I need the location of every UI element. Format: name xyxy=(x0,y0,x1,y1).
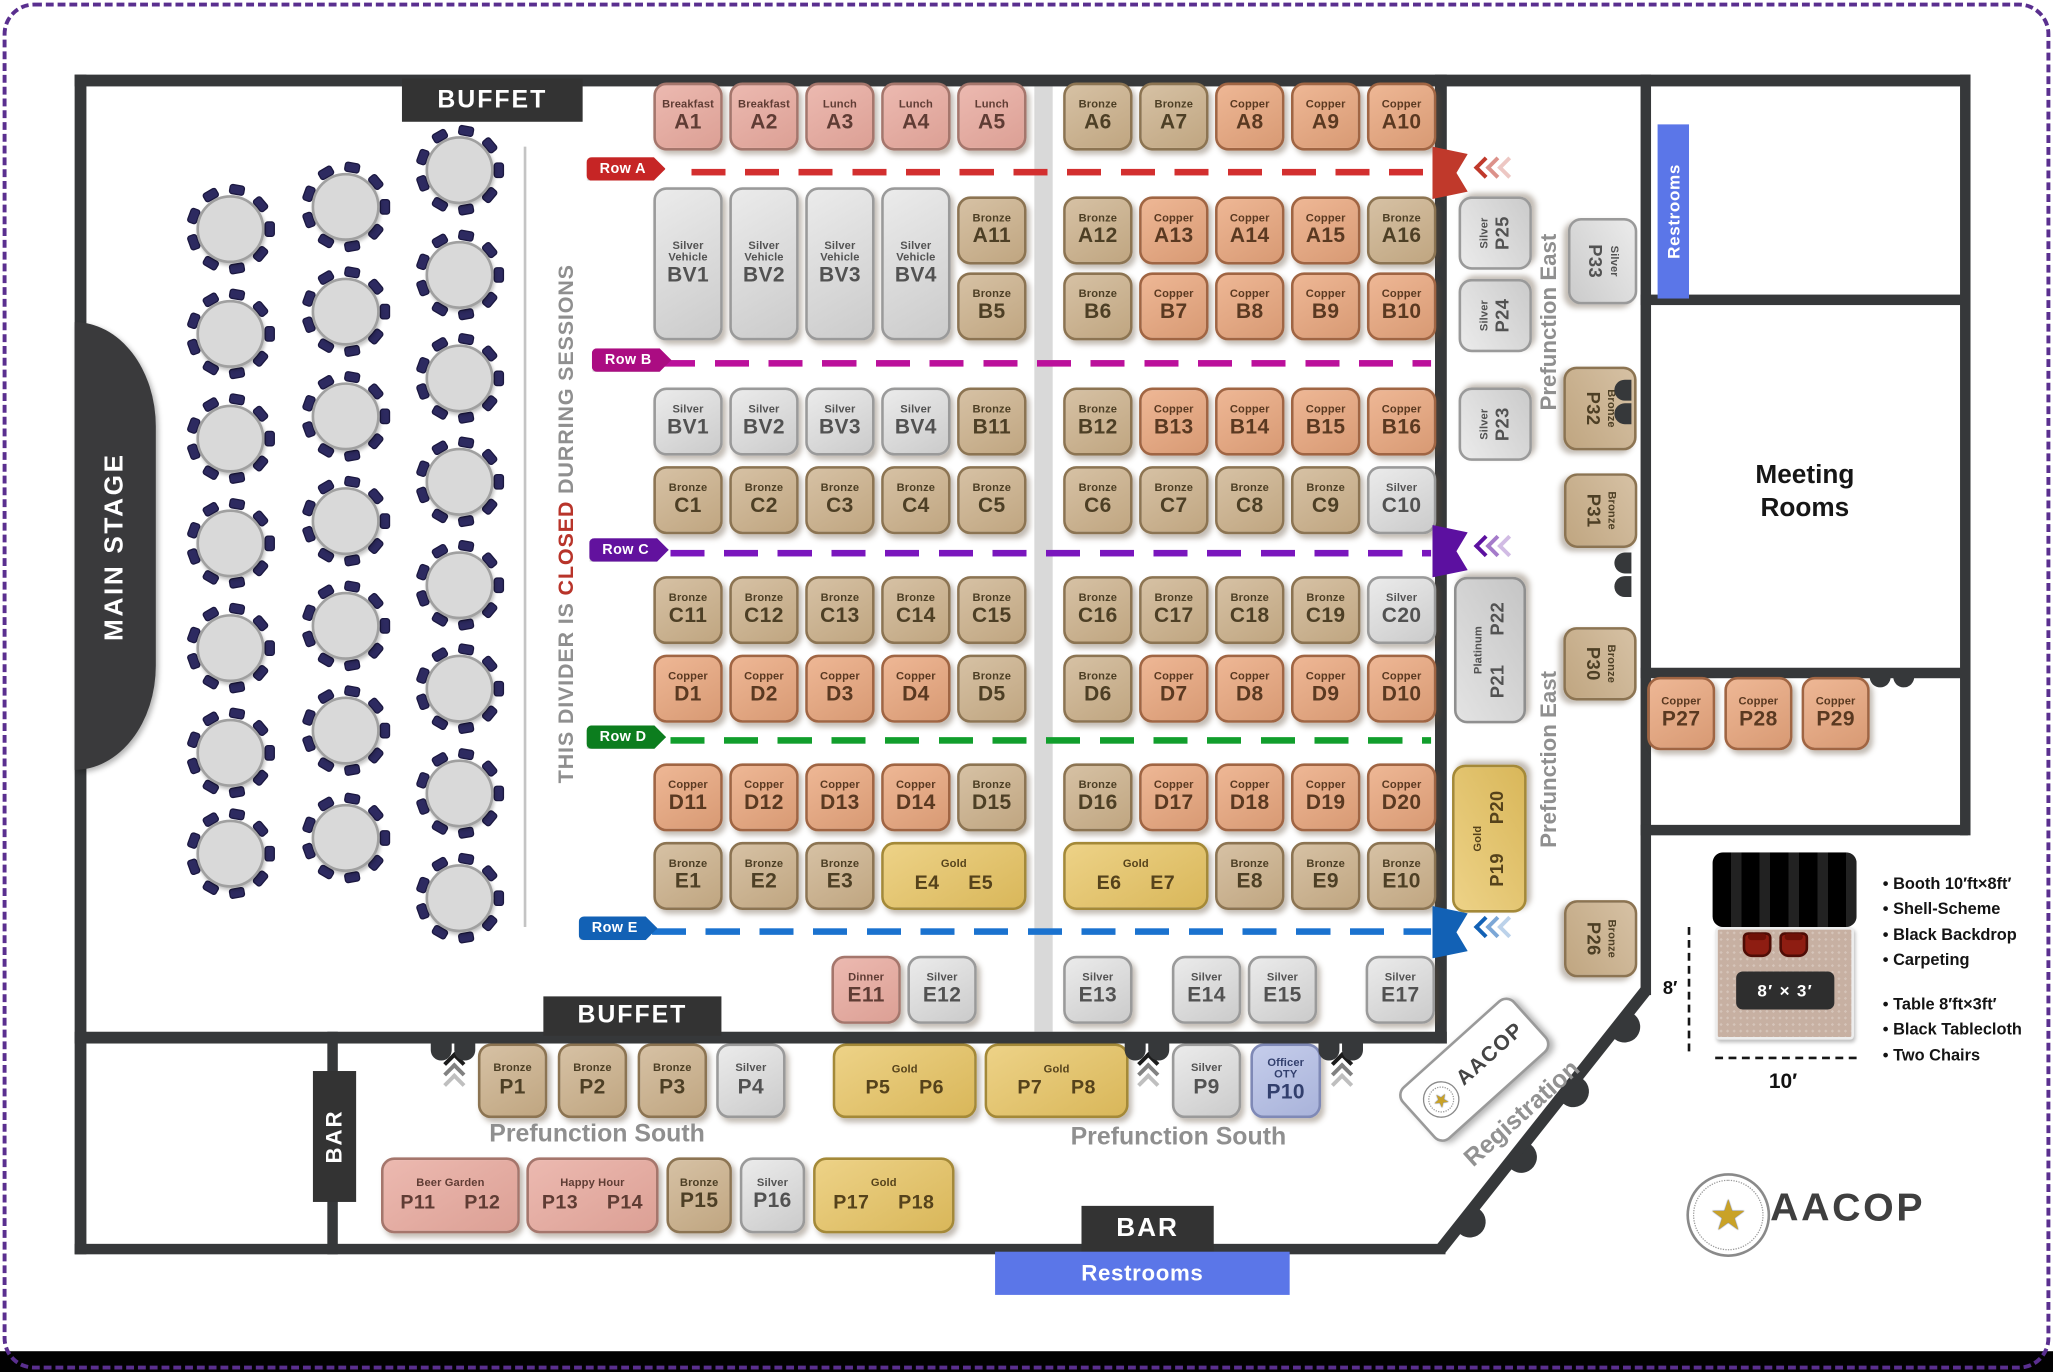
booth-tier: Breakfast xyxy=(662,98,714,110)
chair-icon xyxy=(264,326,274,342)
booth-tier: Copper xyxy=(1306,670,1346,682)
booth-D6[interactable]: BronzeD6 xyxy=(1063,655,1132,723)
booth-id: P4 xyxy=(738,1076,764,1100)
door-swing-icon xyxy=(1614,1014,1647,1049)
booth-spec-list: Booth 10′ft×8ft′Shell-SchemeBlack Backdr… xyxy=(1883,872,2017,973)
booth-D4[interactable]: CopperD4 xyxy=(881,655,950,723)
table-spec-list: Table 8′ft×3ft′Black TableclothTwo Chair… xyxy=(1883,992,2022,1068)
door-swing-icon xyxy=(1870,670,1915,688)
booth-A1[interactable]: BreakfastA1 xyxy=(653,82,722,150)
booth-tier: Silver xyxy=(1478,409,1490,440)
booth-C18[interactable]: BronzeC18 xyxy=(1215,576,1284,644)
booth-id: E4E5 xyxy=(915,872,993,894)
booth-A2[interactable]: BreakfastA2 xyxy=(729,82,798,150)
booth-tier: Copper xyxy=(1382,288,1422,300)
table-top xyxy=(426,241,494,309)
booth-C9[interactable]: BronzeC9 xyxy=(1291,466,1360,534)
booth-id: D16 xyxy=(1078,792,1118,816)
round-table xyxy=(181,389,281,489)
booth-id: D13 xyxy=(820,792,860,816)
booth-D2[interactable]: CopperD2 xyxy=(729,655,798,723)
booth-tier: Bronze xyxy=(1230,592,1269,604)
booth-D5[interactable]: BronzeD5 xyxy=(957,655,1026,723)
booth-C3[interactable]: BronzeC3 xyxy=(805,466,874,534)
spec-table: 8′ × 3′ xyxy=(1736,972,1834,1010)
chair-icon xyxy=(380,304,390,320)
booth-tier: Silver xyxy=(1385,971,1416,983)
booth-D16[interactable]: BronzeD16 xyxy=(1063,763,1132,831)
row-door-marker xyxy=(1432,147,1467,199)
booth-A11[interactable]: BronzeA11 xyxy=(957,196,1026,264)
booth-id: D4 xyxy=(902,684,930,708)
booth-D3[interactable]: CopperD3 xyxy=(805,655,874,723)
booth-C17[interactable]: BronzeC17 xyxy=(1139,576,1208,644)
chair-icon xyxy=(494,267,504,283)
booth-tier: Copper xyxy=(1306,779,1346,791)
booth-id: BV1 xyxy=(667,265,709,289)
booth-rot-wrap: BronzeP30 xyxy=(1563,627,1636,700)
booth-D1[interactable]: CopperD1 xyxy=(653,655,722,723)
booth-E6-E7[interactable]: GoldE6E7 xyxy=(1063,842,1208,910)
booth-tier: Lunch xyxy=(823,98,857,110)
booth-B12[interactable]: BronzeB12 xyxy=(1063,388,1132,456)
booth-id: E6E7 xyxy=(1097,872,1175,894)
booth-B11[interactable]: BronzeB11 xyxy=(957,388,1026,456)
booth-BV1[interactable]: SilverBV1 xyxy=(653,388,722,456)
booth-tier: Copper xyxy=(1154,670,1194,682)
round-table xyxy=(296,262,396,362)
booth-B14[interactable]: CopperB14 xyxy=(1215,388,1284,456)
booth-A15[interactable]: CopperA15 xyxy=(1291,196,1360,264)
booth-id: BV1 xyxy=(667,417,709,441)
row-A-chip: Row A xyxy=(587,157,666,181)
booth-tier: Silver xyxy=(757,1177,788,1189)
booth-P5-P6[interactable]: GoldP5P6 xyxy=(833,1044,977,1119)
booth-C19[interactable]: BronzeC19 xyxy=(1291,576,1360,644)
booth-tier: Bronze xyxy=(973,592,1012,604)
chair-icon xyxy=(229,886,246,899)
booth-tier: Copper xyxy=(896,779,936,791)
booth-id: E10 xyxy=(1382,871,1420,895)
table-top xyxy=(312,697,380,765)
booth-tier: Copper xyxy=(1306,403,1346,415)
booth-id: A9 xyxy=(1312,112,1340,136)
booth-id: A14 xyxy=(1230,225,1270,249)
booth-E2[interactable]: BronzeE2 xyxy=(729,842,798,910)
booth-C15[interactable]: BronzeC15 xyxy=(957,576,1026,644)
booth-tier: Bronze xyxy=(821,482,860,494)
booth-tier: Bronze xyxy=(1155,482,1194,494)
booth-C1[interactable]: BronzeC1 xyxy=(653,466,722,534)
booth-D14[interactable]: CopperD14 xyxy=(881,763,950,831)
booth-C12[interactable]: BronzeC12 xyxy=(729,576,798,644)
booth-id: BV2 xyxy=(743,265,785,289)
booth-A13[interactable]: CopperA13 xyxy=(1139,196,1208,264)
booth-B7[interactable]: CopperB7 xyxy=(1139,272,1208,340)
booth-E11[interactable]: DinnerE11 xyxy=(831,956,900,1024)
booth-B13[interactable]: CopperB13 xyxy=(1139,388,1208,456)
booth-tier: Copper xyxy=(1661,695,1701,707)
booth-D8[interactable]: CopperD8 xyxy=(1215,655,1284,723)
booth-P23[interactable]: SilverP23 xyxy=(1459,388,1532,461)
booth-id: P23 xyxy=(1492,407,1513,441)
table-top xyxy=(426,551,494,619)
booth-P33[interactable]: SilverP33 xyxy=(1567,217,1636,303)
booth-id: C16 xyxy=(1078,605,1118,629)
booth-id: C8 xyxy=(1236,495,1264,519)
table-top xyxy=(196,719,264,787)
booth-id: P27 xyxy=(1662,709,1700,733)
booth-tier: Happy Hour xyxy=(560,1177,624,1189)
booth-tier: Bronze xyxy=(821,592,860,604)
booth-B10[interactable]: CopperB10 xyxy=(1367,272,1436,340)
booth-tier: Silver xyxy=(672,403,703,415)
booth-A3[interactable]: LunchA3 xyxy=(805,82,874,150)
booth-C13[interactable]: BronzeC13 xyxy=(805,576,874,644)
registration-booth-label: AACOP xyxy=(1452,1019,1529,1092)
booth-C10[interactable]: SilverC10 xyxy=(1367,466,1436,534)
booth-B9[interactable]: CopperB9 xyxy=(1291,272,1360,340)
round-table xyxy=(296,788,396,888)
booth-D15[interactable]: BronzeD15 xyxy=(957,763,1026,831)
chair-icon xyxy=(458,826,475,839)
booth-BV4[interactable]: SilverBV4 xyxy=(881,388,950,456)
booth-id: C3 xyxy=(826,495,854,519)
booth-tier: Bronze xyxy=(1079,98,1118,110)
booth-E3[interactable]: BronzeE3 xyxy=(805,842,874,910)
booth-A4[interactable]: LunchA4 xyxy=(881,82,950,150)
booth-B5[interactable]: BronzeB5 xyxy=(957,272,1026,340)
booth-id: P13P14 xyxy=(542,1191,643,1213)
booth-C7[interactable]: BronzeC7 xyxy=(1139,466,1208,534)
booth-tier: Bronze xyxy=(1079,288,1118,300)
booth-A9[interactable]: CopperA9 xyxy=(1291,82,1360,150)
booth-tier: Bronze xyxy=(973,670,1012,682)
booth-tier: Copper xyxy=(1816,695,1856,707)
table-top xyxy=(426,655,494,723)
booth-tier: Platinum xyxy=(1472,625,1484,673)
booth-tier: Breakfast xyxy=(738,98,790,110)
booth-E1[interactable]: BronzeE1 xyxy=(653,842,722,910)
booth-C6[interactable]: BronzeC6 xyxy=(1063,466,1132,534)
table-top xyxy=(426,759,494,827)
door-chevrons-icon xyxy=(1334,1055,1379,1100)
booth-id: C12 xyxy=(744,605,784,629)
booth-C2[interactable]: BronzeC2 xyxy=(729,466,798,534)
booth-tier: Gold xyxy=(892,1063,918,1075)
booth-id: D7 xyxy=(1160,684,1188,708)
chair-icon xyxy=(344,553,361,566)
booth-id: D20 xyxy=(1382,792,1422,816)
booth-P30[interactable]: BronzeP30 xyxy=(1563,627,1636,700)
door-chevrons-icon xyxy=(1477,538,1522,583)
booth-D12[interactable]: CopperD12 xyxy=(729,763,798,831)
booth-C5[interactable]: BronzeC5 xyxy=(957,466,1026,534)
row-D-line xyxy=(670,737,1431,744)
booth-id: D15 xyxy=(972,792,1012,816)
booth-tier: Silver Vehicle xyxy=(734,239,794,263)
booth-id: C4 xyxy=(902,495,930,519)
booth-P27[interactable]: CopperP27 xyxy=(1647,677,1715,750)
booth-id: BV4 xyxy=(895,265,937,289)
booth-id: B15 xyxy=(1306,417,1346,441)
chair-icon xyxy=(264,536,274,552)
booth-rot-wrap: BronzeP26 xyxy=(1563,899,1636,976)
chair-icon xyxy=(229,366,246,379)
booth-E4-E5[interactable]: GoldE4E5 xyxy=(881,842,1026,910)
chair-icon xyxy=(344,344,361,357)
booth-id: B13 xyxy=(1154,417,1194,441)
booth-D20[interactable]: CopperD20 xyxy=(1367,763,1436,831)
booth-A14[interactable]: CopperA14 xyxy=(1215,196,1284,264)
booth-P3[interactable]: BronzeP3 xyxy=(638,1044,707,1119)
chair-icon xyxy=(458,411,475,424)
spec-item: Two Chairs xyxy=(1883,1043,2022,1068)
dimension-line-vertical xyxy=(1688,927,1691,1051)
booth-E15[interactable]: SilverE15 xyxy=(1248,956,1317,1024)
bar-bottom-label: BAR xyxy=(1081,1206,1213,1252)
booth-tier: Bronze xyxy=(745,482,784,494)
chair-icon xyxy=(494,681,504,697)
chair-icon xyxy=(1743,932,1772,957)
prefunction-south-right-label: Prefunction South xyxy=(1074,1122,1283,1153)
booth-C11[interactable]: BronzeC11 xyxy=(653,576,722,644)
wall xyxy=(75,1032,1447,1044)
booth-P25[interactable]: SilverP25 xyxy=(1459,196,1532,269)
booth-A5[interactable]: LunchA5 xyxy=(957,82,1026,150)
booth-P19-P20[interactable]: GoldP19P20 xyxy=(1452,765,1527,913)
booth-tier: Bronze xyxy=(493,1062,532,1074)
booth-B16[interactable]: CopperB16 xyxy=(1367,388,1436,456)
booth-D18[interactable]: CopperD18 xyxy=(1215,763,1284,831)
booth-P28[interactable]: CopperP28 xyxy=(1724,677,1792,750)
booth-tier: Copper xyxy=(820,670,860,682)
booth-tier: Officer OTY xyxy=(1256,1056,1316,1080)
booth-id: BV3 xyxy=(819,265,861,289)
booth-P4[interactable]: SilverP4 xyxy=(716,1044,785,1119)
wall xyxy=(75,75,1971,87)
booth-D17[interactable]: CopperD17 xyxy=(1139,763,1208,831)
booth-tier: Bronze xyxy=(653,1062,692,1074)
booth-C16[interactable]: BronzeC16 xyxy=(1063,576,1132,644)
door-swing-icon xyxy=(431,1044,476,1062)
booth-rot-wrap: BronzeP31 xyxy=(1563,473,1636,548)
table-top xyxy=(196,820,264,888)
booth-id: A4 xyxy=(902,112,930,136)
booth-P26[interactable]: BronzeP26 xyxy=(1563,899,1636,976)
booth-P10[interactable]: Officer OTYP10 xyxy=(1250,1044,1321,1119)
booth-P16[interactable]: SilverP16 xyxy=(740,1157,805,1233)
booth-B6[interactable]: BronzeB6 xyxy=(1063,272,1132,340)
booth-id: E17 xyxy=(1381,985,1419,1009)
booth-A12[interactable]: BronzeA12 xyxy=(1063,196,1132,264)
booth-id: D9 xyxy=(1312,684,1340,708)
booth-id: P16 xyxy=(753,1190,791,1214)
booth-P29[interactable]: CopperP29 xyxy=(1802,677,1870,750)
booth-id: C9 xyxy=(1312,495,1340,519)
booth-tier: Copper xyxy=(1230,670,1270,682)
booth-E13[interactable]: SilverE13 xyxy=(1063,956,1132,1024)
booth-tier: Gold xyxy=(871,1177,897,1189)
booth-id: B6 xyxy=(1084,301,1112,325)
booth-id: D12 xyxy=(744,792,784,816)
booth-tier: Bronze xyxy=(1306,482,1345,494)
prefunction-south-left-label: Prefunction South xyxy=(492,1119,701,1150)
booth-tier: Bronze xyxy=(1079,592,1118,604)
booth-id: D19 xyxy=(1306,792,1346,816)
chair-icon xyxy=(458,617,475,630)
booth-tier: Bronze xyxy=(1382,212,1421,224)
booth-tier: Silver xyxy=(926,971,957,983)
wall xyxy=(1641,295,1968,305)
booth-id: B16 xyxy=(1382,417,1422,441)
booth-A8[interactable]: CopperA8 xyxy=(1215,82,1284,150)
booth-BV2[interactable]: SilverBV2 xyxy=(729,388,798,456)
chair-icon xyxy=(344,239,361,252)
booth-E17[interactable]: SilverE17 xyxy=(1366,956,1435,1024)
chair-icon xyxy=(494,474,504,490)
chair-icon xyxy=(458,721,475,734)
table-top xyxy=(312,382,380,450)
booth-tier: Copper xyxy=(1739,695,1779,707)
booth-id: E11 xyxy=(847,985,884,1009)
booth-C8[interactable]: BronzeC8 xyxy=(1215,466,1284,534)
booth-A10[interactable]: CopperA10 xyxy=(1367,82,1436,150)
booth-P21-P22[interactable]: PlatinumP21P22 xyxy=(1453,576,1525,723)
booth-P2[interactable]: BronzeP2 xyxy=(558,1044,627,1119)
booth-BV4[interactable]: Silver VehicleBV4 xyxy=(881,187,950,340)
row-E-line xyxy=(652,928,1431,935)
prefunction-east-bottom-label: Prefunction East xyxy=(1532,628,1569,890)
booth-D7[interactable]: CopperD7 xyxy=(1139,655,1208,723)
booth-D13[interactable]: CopperD13 xyxy=(805,763,874,831)
booth-tier: Silver Vehicle xyxy=(886,239,946,263)
booth-id: B10 xyxy=(1382,301,1422,325)
booth-D11[interactable]: CopperD11 xyxy=(653,763,722,831)
chair-icon xyxy=(380,513,390,529)
booth-C14[interactable]: BronzeC14 xyxy=(881,576,950,644)
booth-P13-P14[interactable]: Happy HourP13P14 xyxy=(526,1157,658,1233)
booth-B8[interactable]: CopperB8 xyxy=(1215,272,1284,340)
booth-tier: Silver xyxy=(735,1062,766,1074)
booth-P17-P18[interactable]: GoldP17P18 xyxy=(813,1157,954,1233)
booth-id: A15 xyxy=(1306,225,1346,249)
booth-id: D2 xyxy=(750,684,778,708)
booth-id: C2 xyxy=(750,495,778,519)
prefunction-east-top-label: Prefunction East xyxy=(1532,194,1569,449)
booth-C4[interactable]: BronzeC4 xyxy=(881,466,950,534)
table-top xyxy=(312,487,380,555)
chair-icon xyxy=(264,846,274,862)
buffet-bottom-label: BUFFET xyxy=(543,996,721,1035)
booth-id: B5 xyxy=(978,301,1006,325)
round-table xyxy=(410,120,510,220)
booth-E8[interactable]: BronzeE8 xyxy=(1215,842,1284,910)
round-table xyxy=(410,744,510,844)
booth-tier: Copper xyxy=(1154,212,1194,224)
booth-B15[interactable]: CopperB15 xyxy=(1291,388,1360,456)
booth-BV2[interactable]: Silver VehicleBV2 xyxy=(729,187,798,340)
spec-item: Table 8′ft×3ft′ xyxy=(1883,992,2022,1017)
booth-tier: Copper xyxy=(744,779,784,791)
booth-tier: Bronze xyxy=(669,592,708,604)
booth-E12[interactable]: SilverE12 xyxy=(907,956,976,1024)
booth-tier: Silver xyxy=(900,403,931,415)
spec-item: Carpeting xyxy=(1883,948,2017,973)
booth-tier: Bronze xyxy=(1605,491,1617,530)
aacop-brand-logo: ★ xyxy=(1686,1173,1770,1257)
booth-id: C13 xyxy=(820,605,860,629)
booth-id: C14 xyxy=(896,605,936,629)
bottom-edge-strip xyxy=(0,1351,2053,1372)
booth-tier: Gold xyxy=(941,858,967,870)
door-chevrons-icon xyxy=(446,1055,491,1100)
booth-P15[interactable]: BronzeP15 xyxy=(666,1157,731,1233)
booth-id: E3 xyxy=(827,871,853,895)
booth-id: P19P20 xyxy=(1486,790,1507,886)
booth-D9[interactable]: CopperD9 xyxy=(1291,655,1360,723)
booth-C20[interactable]: SilverC20 xyxy=(1367,576,1436,644)
booth-tier: Bronze xyxy=(669,482,708,494)
booth-A7[interactable]: BronzeA7 xyxy=(1139,82,1208,150)
booth-id: D8 xyxy=(1236,684,1264,708)
chair-icon xyxy=(229,261,246,274)
booth-id: P21P22 xyxy=(1486,601,1507,697)
row-C-line xyxy=(670,550,1431,557)
booth-P11-P12[interactable]: Beer GardenP11P12 xyxy=(381,1157,520,1233)
table-top xyxy=(426,344,494,412)
booth-tier: Copper xyxy=(1230,288,1270,300)
booth-id: A13 xyxy=(1154,225,1194,249)
booth-id: A11 xyxy=(973,225,1011,249)
booth-id: B8 xyxy=(1236,301,1264,325)
booth-E9[interactable]: BronzeE9 xyxy=(1291,842,1360,910)
booth-tier: Bronze xyxy=(973,403,1012,415)
booth-A16[interactable]: BronzeA16 xyxy=(1367,196,1436,264)
booth-id: P31 xyxy=(1583,493,1604,527)
dimension-line-horizontal xyxy=(1715,1057,1856,1060)
booth-tier: Gold xyxy=(1123,858,1149,870)
chair-icon xyxy=(494,890,504,906)
booth-P31[interactable]: BronzeP31 xyxy=(1563,473,1636,548)
booth-tier: Silver xyxy=(748,403,779,415)
booth-id: P33 xyxy=(1585,244,1606,278)
chair-icon xyxy=(229,680,246,693)
booth-D10[interactable]: CopperD10 xyxy=(1367,655,1436,723)
booth-P24[interactable]: SilverP24 xyxy=(1459,279,1532,352)
booth-id: D5 xyxy=(978,684,1006,708)
booth-id: C19 xyxy=(1306,605,1346,629)
booth-P7-P8[interactable]: GoldP7P8 xyxy=(985,1044,1129,1119)
wall xyxy=(1641,825,1968,835)
booth-BV3[interactable]: SilverBV3 xyxy=(805,388,874,456)
booth-E14[interactable]: SilverE14 xyxy=(1172,956,1241,1024)
booth-BV1[interactable]: Silver VehicleBV1 xyxy=(653,187,722,340)
wall xyxy=(1960,75,1970,836)
row-A-line xyxy=(691,169,1431,176)
booth-D19[interactable]: CopperD19 xyxy=(1291,763,1360,831)
booth-BV3[interactable]: Silver VehicleBV3 xyxy=(805,187,874,340)
divider-note: THIS DIVIDER IS CLOSED DURRING SESSIONS xyxy=(554,264,579,783)
booth-tier: Bronze xyxy=(1230,482,1269,494)
booth-A6[interactable]: BronzeA6 xyxy=(1063,82,1132,150)
booth-tier: Bronze xyxy=(1306,592,1345,604)
booth-id: E1 xyxy=(675,871,701,895)
booth-E10[interactable]: BronzeE10 xyxy=(1367,842,1436,910)
booth-tier: Copper xyxy=(1230,403,1270,415)
booth-tier: Bronze xyxy=(1079,212,1118,224)
booth-tier: Bronze xyxy=(669,857,708,869)
